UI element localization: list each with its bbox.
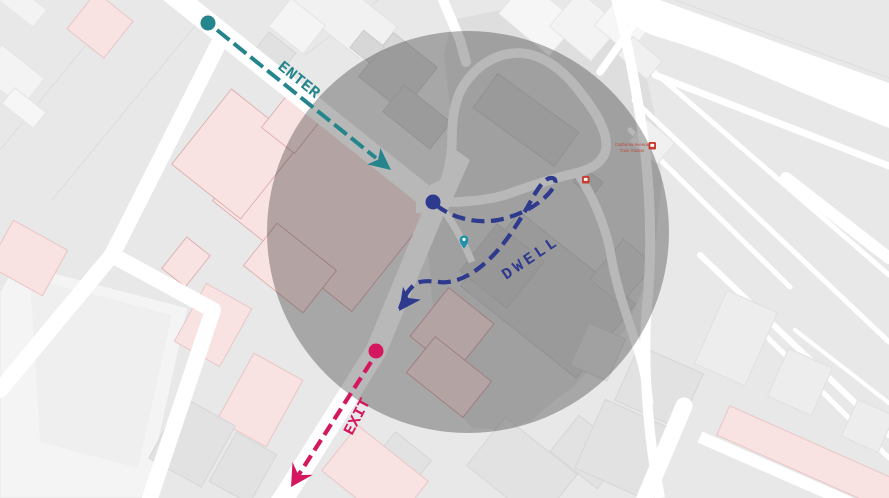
svg-text:Train Station: Train Station [620, 148, 645, 153]
svg-text:California Avenue: California Avenue [615, 142, 650, 147]
